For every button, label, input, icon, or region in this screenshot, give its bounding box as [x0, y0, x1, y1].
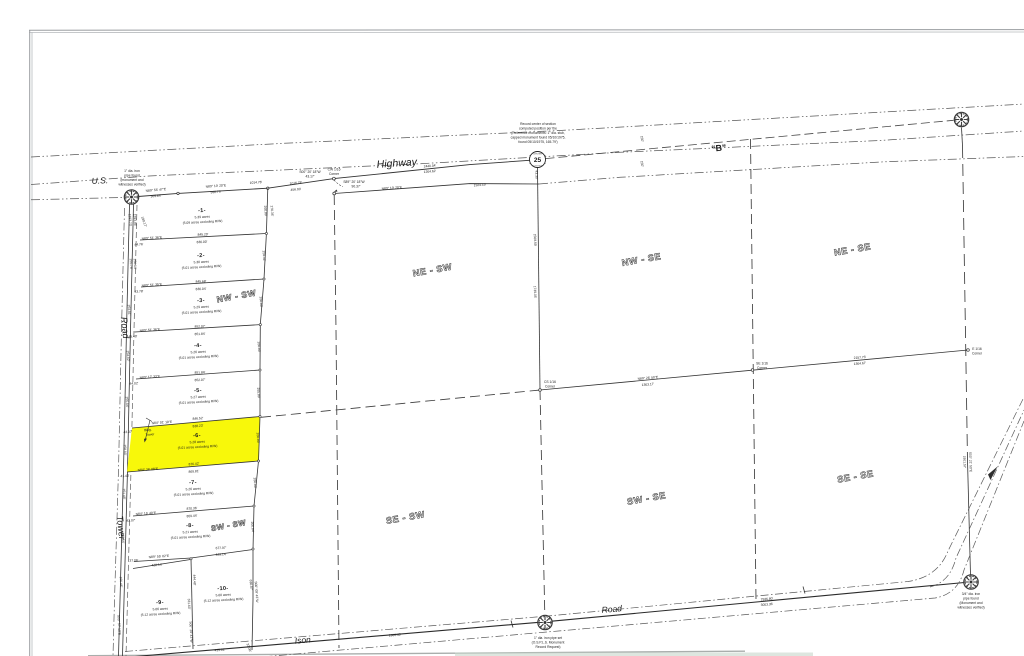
svg-text:found 05/10/1975, 165.79'): found 05/10/1975, 165.79')	[518, 140, 557, 144]
svg-text:869.81': 869.81'	[188, 469, 199, 474]
svg-text:(O.S.P.L.S. Monument: (O.S.P.L.S. Monument	[532, 641, 565, 645]
svg-text:42.07': 42.07'	[126, 518, 136, 523]
svg-text:CW 1/16: CW 1/16	[328, 168, 341, 172]
svg-text:3/4" dia. iron: 3/4" dia. iron	[962, 592, 981, 596]
svg-text:S00° 20' 18"W: S00° 20' 18"W	[299, 170, 321, 174]
svg-text:computed position per the: computed position per the	[519, 127, 557, 131]
svg-text:“B”: “B”	[711, 142, 727, 153]
svg-text:44.02': 44.02'	[129, 381, 139, 386]
svg-text:90.37': 90.37'	[352, 185, 361, 189]
svg-text:-10-: -10-	[217, 586, 228, 593]
svg-text:25: 25	[534, 157, 542, 164]
svg-text:Corner: Corner	[757, 366, 768, 370]
svg-text:258.00': 258.00'	[123, 444, 128, 455]
svg-text:(Reference monuments: 1" dia.: (Reference monuments: 1" dia. stub,	[511, 131, 565, 135]
svg-text:836.04': 836.04'	[195, 287, 206, 292]
svg-text:SE 1/16: SE 1/16	[756, 362, 768, 366]
svg-text:838.23': 838.23'	[192, 424, 203, 429]
svg-text:Ison: Ison	[294, 634, 311, 645]
svg-text:846.52': 846.52'	[192, 416, 203, 421]
svg-text:240.04': 240.04'	[121, 532, 126, 543]
svg-text:255.00': 255.00'	[256, 387, 261, 398]
svg-text:876.42': 876.42'	[188, 462, 199, 467]
svg-text:-1-: -1-	[198, 208, 206, 214]
svg-text:260.00': 260.00'	[257, 341, 262, 352]
svg-text:-4-: -4-	[194, 343, 202, 349]
svg-text:5.30 acres: 5.30 acres	[193, 260, 209, 265]
svg-text:5.26 acres: 5.26 acres	[190, 350, 206, 355]
svg-text:260.00': 260.00'	[263, 205, 268, 216]
svg-text:44.76': 44.76'	[134, 242, 144, 247]
svg-text:-7-: -7-	[189, 480, 197, 486]
svg-text:836.00': 836.00'	[196, 240, 207, 245]
svg-text:Corner: Corner	[545, 385, 556, 389]
svg-text:1" dia. iron: 1" dia. iron	[124, 169, 140, 173]
svg-text:pipe found: pipe found	[963, 597, 979, 601]
svg-text:-8-: -8-	[186, 523, 194, 529]
svg-text:5.60 acres: 5.60 acres	[215, 593, 231, 598]
svg-text:S00° 21' 50"E: S00° 21' 50"E	[968, 452, 973, 473]
svg-text:1293.86': 1293.86'	[133, 214, 138, 227]
svg-text:851.84': 851.84'	[194, 332, 205, 337]
svg-text:331.60': 331.60'	[187, 598, 192, 609]
svg-text:852.07': 852.07'	[194, 324, 205, 329]
svg-text:capped monument found 05/10/19: capped monument found 05/10/1975,	[511, 136, 566, 140]
svg-text:630.87': 630.87'	[249, 579, 254, 590]
svg-text:845.68': 845.68'	[195, 279, 206, 284]
svg-text:witnesses verified): witnesses verified)	[118, 183, 145, 187]
svg-text:(Monument and: (Monument and	[959, 601, 982, 605]
svg-text:(monument and: (monument and	[120, 178, 143, 182]
svg-text:253.81': 253.81'	[127, 304, 132, 315]
svg-text:444.48': 444.48'	[192, 574, 197, 585]
svg-text:pipe found: pipe found	[124, 174, 140, 178]
svg-text:256.04': 256.04'	[133, 258, 138, 269]
svg-text:260.00': 260.00'	[256, 432, 261, 443]
svg-text:37.06': 37.06'	[129, 558, 139, 563]
svg-text:5.29 acres: 5.29 acres	[193, 305, 209, 310]
svg-text:200.04': 200.04'	[250, 521, 255, 532]
svg-text:251.48': 251.48'	[122, 488, 127, 499]
svg-text:Record Request): Record Request)	[536, 645, 561, 649]
svg-text:CS 1/16: CS 1/16	[544, 380, 556, 384]
svg-text:420.14': 420.14'	[151, 563, 162, 568]
svg-text:1901.57': 1901.57'	[962, 456, 966, 469]
svg-text:witnesses verified): witnesses verified)	[957, 606, 984, 610]
svg-text:S89° 20' 18"W: S89° 20' 18"W	[343, 180, 365, 184]
svg-text:255.79': 255.79'	[129, 258, 134, 269]
svg-text:45.40': 45.40'	[128, 334, 138, 339]
svg-text:-5-: -5-	[194, 388, 202, 394]
svg-text:43.17': 43.17'	[306, 175, 315, 179]
svg-text:Corner: Corner	[972, 352, 983, 356]
svg-text:5.27 acres: 5.27 acres	[190, 395, 206, 400]
svg-text:-2-: -2-	[197, 253, 205, 259]
svg-text:254.02': 254.02'	[126, 350, 131, 361]
svg-text:41.40': 41.40'	[120, 474, 130, 479]
svg-text:270.36': 270.36'	[270, 205, 275, 216]
svg-text:419.02': 419.02'	[214, 648, 225, 653]
svg-text:Corner: Corner	[329, 172, 340, 176]
svg-text:Record center of section: Record center of section	[520, 122, 556, 126]
svg-text:280.00': 280.00'	[259, 296, 264, 307]
svg-text:43.07': 43.07'	[123, 430, 133, 435]
svg-text:259.42': 259.42'	[262, 250, 267, 261]
svg-text:-9-: -9-	[156, 600, 164, 606]
svg-text:870.36': 870.36'	[186, 506, 197, 511]
svg-text:-3-: -3-	[197, 298, 205, 304]
svg-text:1568.59': 1568.59'	[533, 234, 537, 247]
svg-text:POSITION: POSITION	[532, 166, 543, 168]
svg-text:280.00': 280.00'	[253, 477, 258, 488]
svg-text:5.26 acres: 5.26 acres	[185, 487, 201, 492]
svg-text:1739.05': 1739.05'	[533, 286, 537, 299]
svg-text:255.04': 255.04'	[125, 396, 130, 407]
svg-text:1" dia. iron pipe set: 1" dia. iron pipe set	[534, 636, 562, 640]
svg-text:160.46': 160.46'	[119, 576, 124, 587]
svg-text:E 1/16: E 1/16	[972, 347, 982, 351]
svg-text:1293.73': 1293.73'	[128, 214, 133, 227]
svg-text:Road: Road	[601, 603, 622, 615]
svg-text:5.21 acres: 5.21 acres	[182, 530, 198, 535]
svg-text:5.28 acres: 5.28 acres	[189, 440, 205, 445]
svg-text:43.30': 43.30'	[534, 170, 538, 179]
svg-text:851.84': 851.84'	[194, 370, 205, 375]
svg-text:U.S.: U.S.	[91, 175, 108, 186]
svg-text:845.20': 845.20'	[197, 232, 208, 237]
svg-text:859.44': 859.44'	[186, 514, 197, 519]
svg-text:590.79': 590.79'	[210, 190, 221, 195]
svg-text:852.07': 852.07'	[194, 378, 205, 383]
svg-text:677.97': 677.97'	[215, 546, 226, 551]
svg-text:429.14': 429.14'	[215, 552, 226, 557]
svg-text:-6-: -6-	[193, 433, 201, 439]
svg-text:5.39 acres: 5.39 acres	[194, 215, 210, 220]
svg-text:5.06 acres: 5.06 acres	[152, 607, 168, 612]
svg-text:CENTER: CENTER	[533, 154, 542, 156]
svg-text:43.78': 43.78'	[134, 289, 144, 294]
